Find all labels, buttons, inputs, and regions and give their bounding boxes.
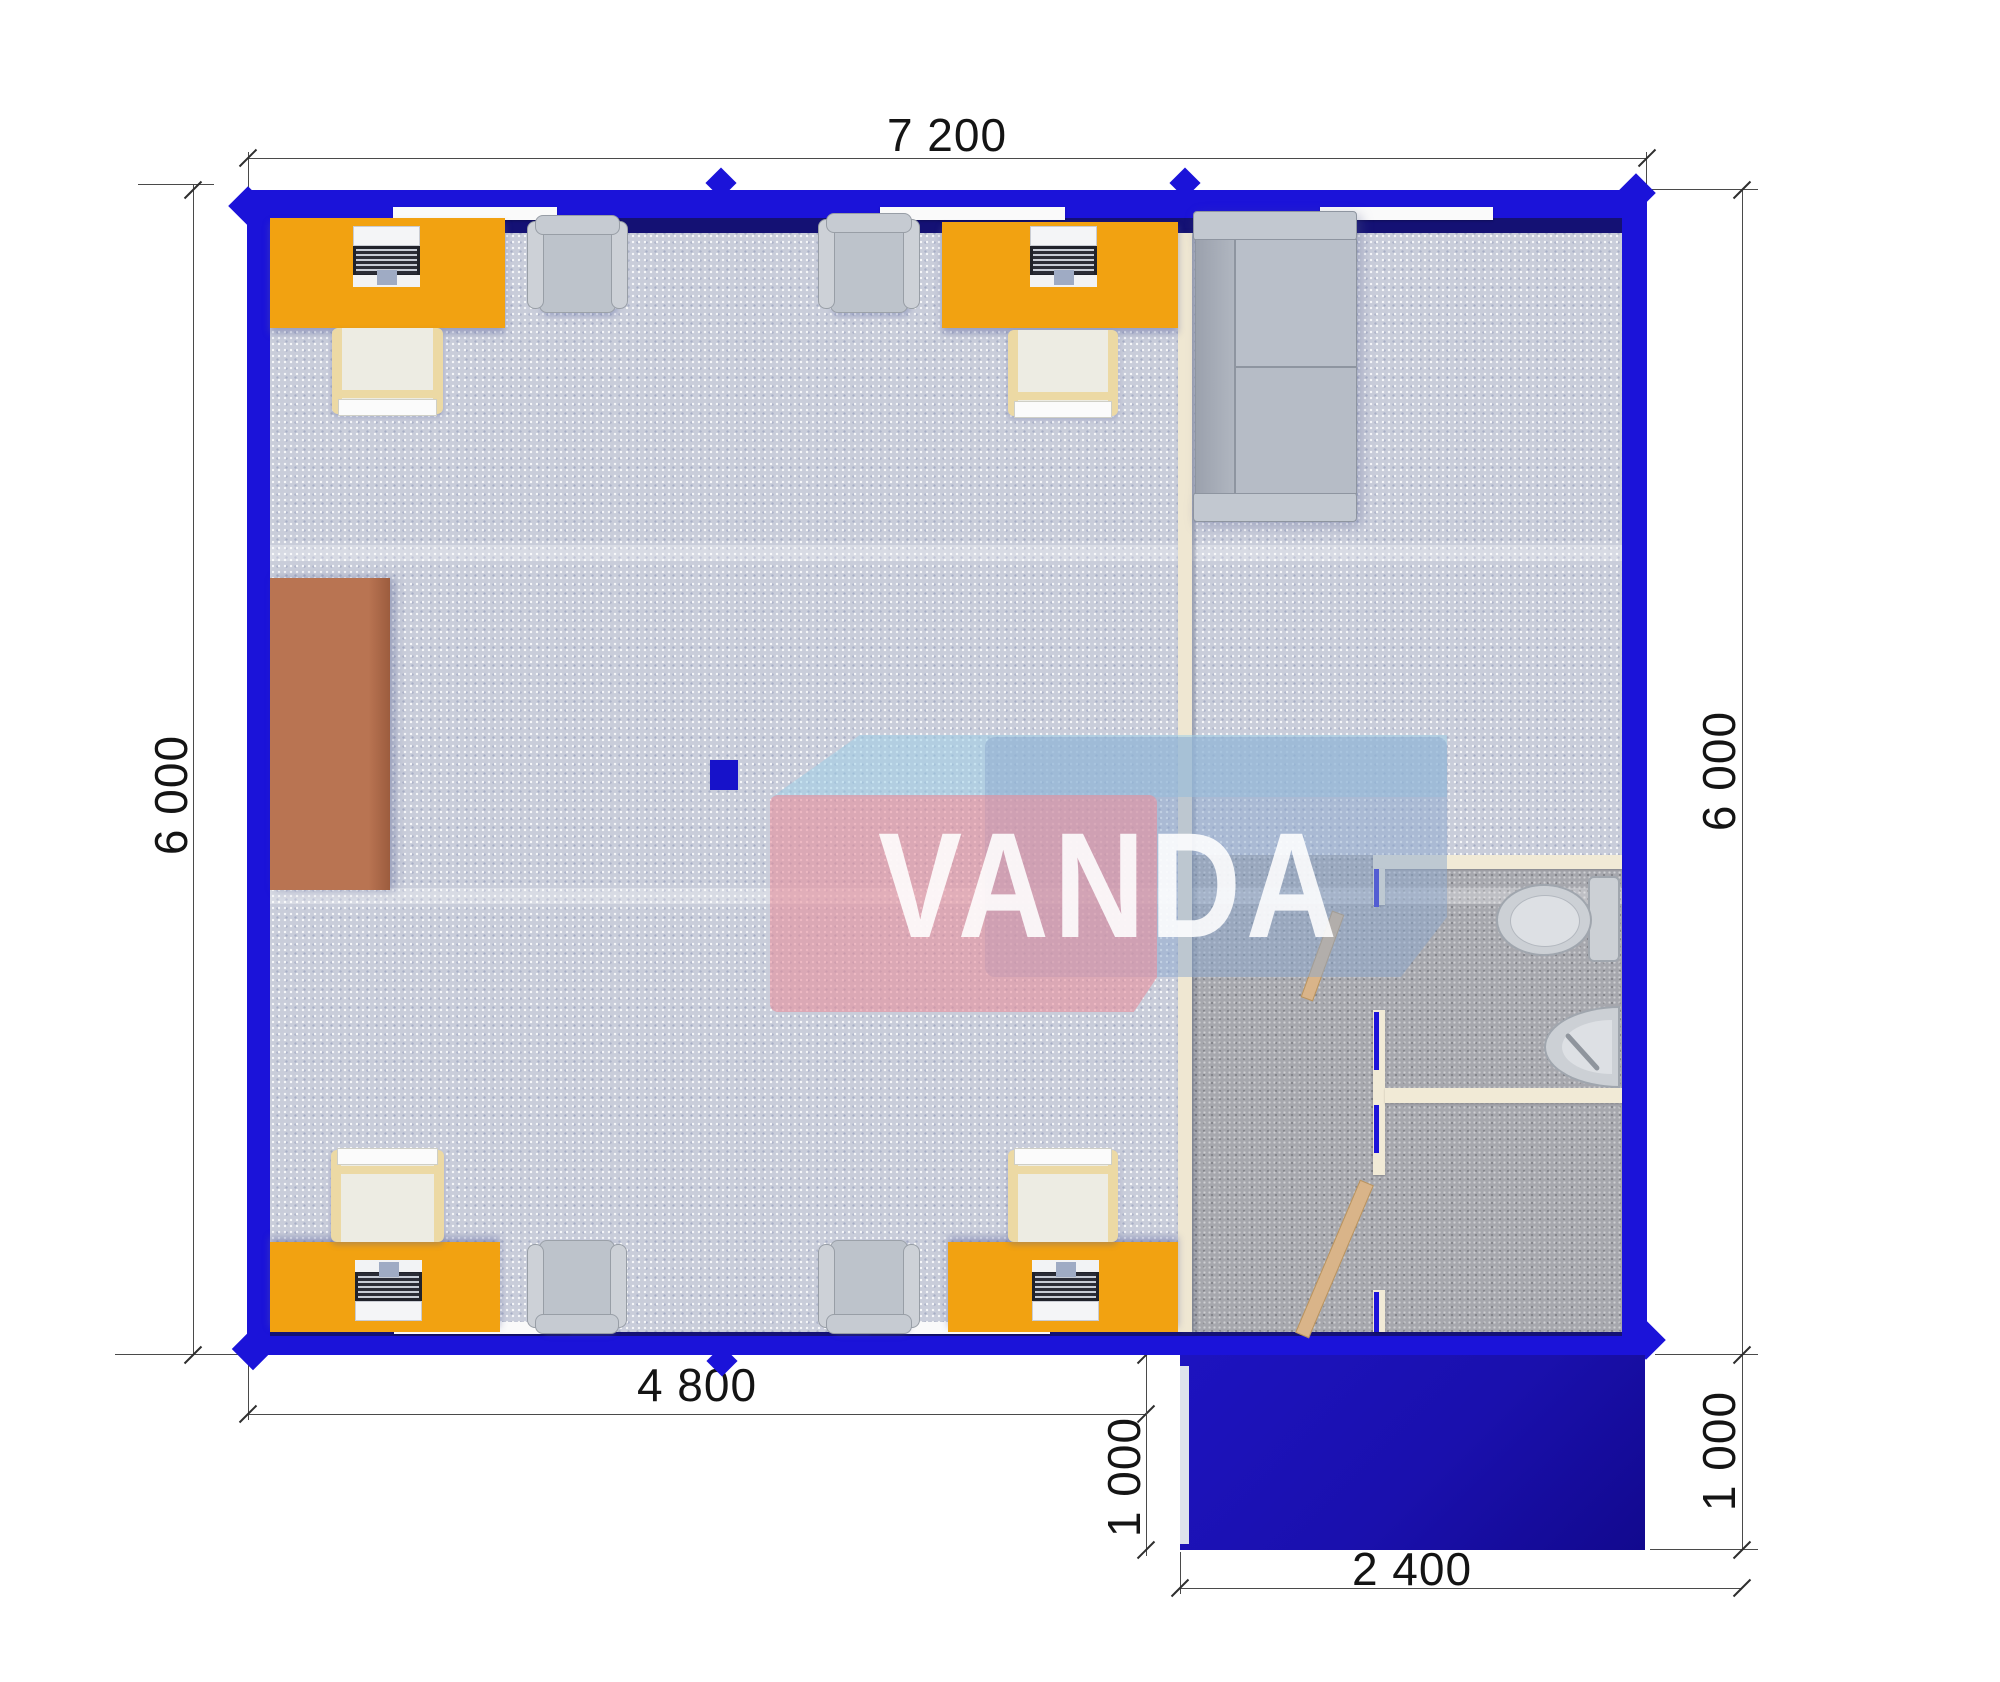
chair-rail — [1014, 1166, 1112, 1174]
chair-rail — [338, 390, 437, 398]
guest-chair — [527, 217, 628, 313]
guest-chair — [818, 215, 920, 313]
sofa-armrest-bottom — [1193, 492, 1357, 522]
task-chair — [1008, 330, 1118, 416]
dim-label-overall-width: 7 200 — [847, 110, 1047, 160]
door-frame — [1374, 1012, 1379, 1070]
laptop-icon — [355, 1260, 422, 1321]
chair-backrest — [535, 1314, 619, 1334]
chair-backrest — [338, 399, 437, 416]
laptop-touchpad — [377, 270, 397, 285]
chair-backrest — [1014, 1148, 1112, 1165]
door-frame — [1374, 1105, 1379, 1153]
task-chair — [1008, 1150, 1118, 1242]
wall-right — [1622, 190, 1647, 1355]
laptop-touchpad — [379, 1262, 399, 1277]
laptop-screen — [355, 1301, 422, 1321]
toilet-tank — [1588, 876, 1620, 962]
plan-origin-marker — [710, 760, 738, 790]
dim-ext — [115, 1354, 248, 1355]
sofa-seat-cushion — [1235, 367, 1357, 494]
task-chair — [332, 328, 443, 414]
chair-rail — [1014, 392, 1112, 400]
door-frame — [1374, 1292, 1379, 1332]
laptop-icon — [1030, 226, 1097, 287]
laptop-screen — [1032, 1301, 1099, 1321]
laptop-touchpad — [1054, 270, 1074, 285]
chair-backrest — [337, 1148, 438, 1165]
porch-step-edge — [1180, 1366, 1189, 1544]
sofa-armrest-top — [1193, 211, 1357, 241]
toilet-bowl-inner — [1510, 895, 1580, 947]
dim-line-office-width — [248, 1414, 1146, 1415]
floor-seam — [270, 545, 1622, 561]
sofa-backrest — [1195, 239, 1235, 494]
wall-left — [247, 190, 270, 1355]
floor-plan-canvas: 7 200 6 000 6 000 1 000 4 800 1 000 2 40… — [0, 0, 2000, 1682]
chair-backrest — [535, 215, 620, 235]
task-chair — [331, 1150, 444, 1242]
laptop-screen — [353, 226, 420, 246]
dim-ext — [138, 184, 214, 185]
sofa — [1193, 211, 1357, 522]
bathroom-divider-wall — [1385, 1088, 1622, 1103]
dim-label-right-depth: 6 000 — [1694, 671, 1744, 871]
dim-label-porch-depth-left: 1 000 — [1099, 1377, 1149, 1577]
dim-label-porch-width: 2 400 — [1312, 1544, 1512, 1594]
laptop-icon — [353, 226, 420, 287]
entrance-porch — [1180, 1355, 1645, 1550]
cabinet-sideboard — [270, 578, 390, 890]
guest-chair — [527, 1240, 627, 1332]
logo-wordmark: VANDA — [816, 805, 1404, 965]
chair-backrest — [826, 213, 912, 233]
chair-rail — [337, 1166, 438, 1174]
laptop-icon — [1032, 1260, 1099, 1321]
laptop-touchpad — [1056, 1262, 1076, 1277]
dim-label-left-depth: 6 000 — [146, 695, 196, 895]
dim-label-porch-depth-right: 1 000 — [1694, 1351, 1744, 1551]
laptop-screen — [1030, 226, 1097, 246]
guest-chair — [818, 1240, 920, 1332]
sofa-seat-cushion — [1235, 239, 1357, 367]
chair-backrest — [1014, 401, 1112, 418]
dim-label-office-width: 4 800 — [597, 1360, 797, 1410]
chair-backrest — [826, 1314, 912, 1334]
